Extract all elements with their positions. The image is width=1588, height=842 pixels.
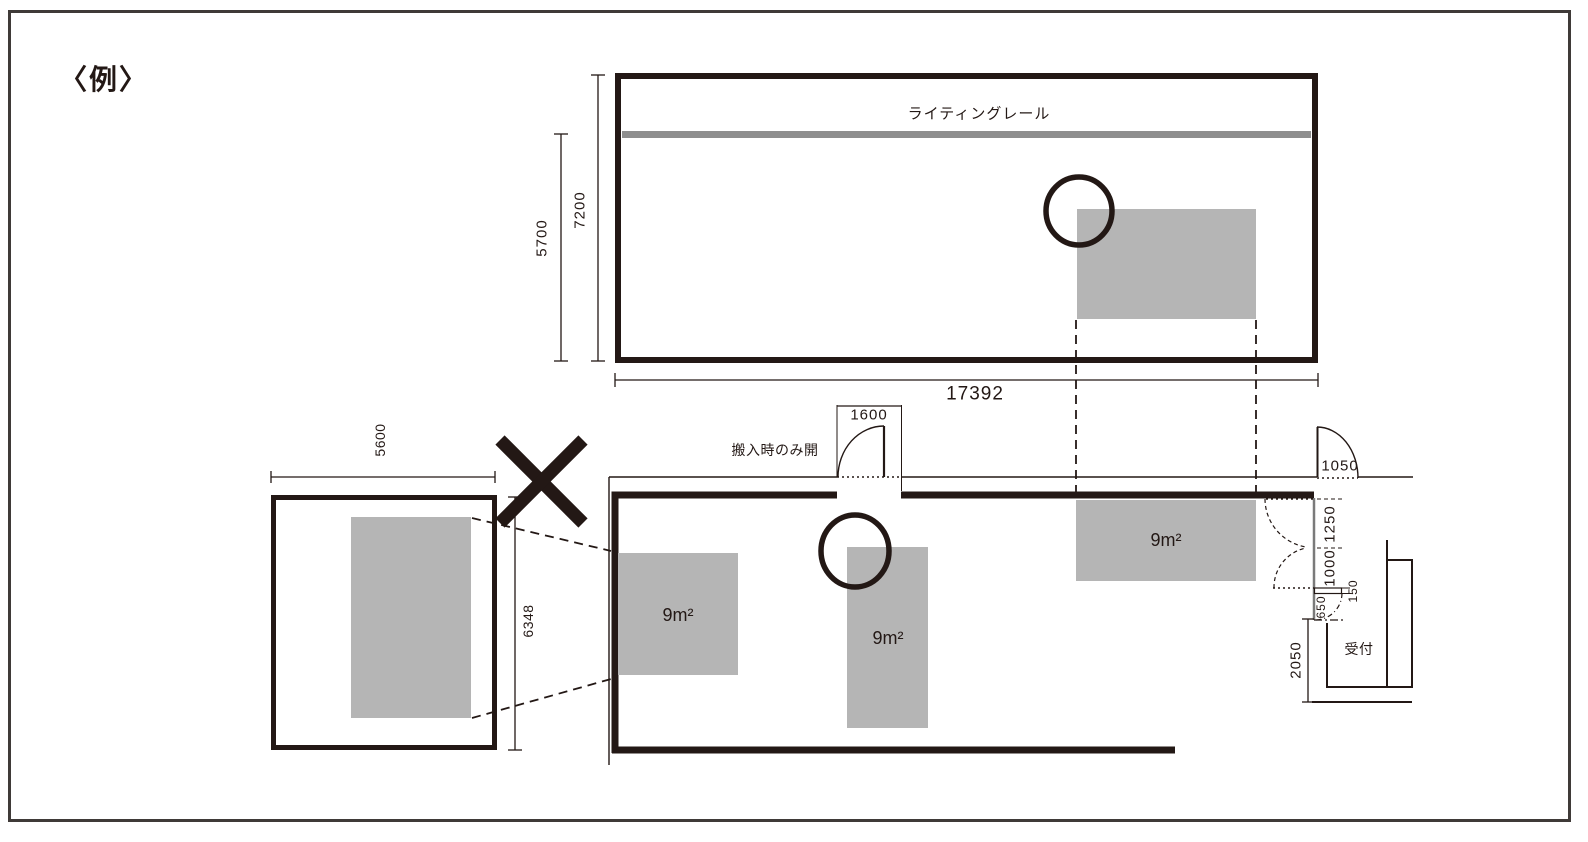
dim-label-6348: 6348: [521, 604, 535, 637]
dim-label-1050: 1050: [1321, 459, 1358, 474]
dim-label-5700: 5700: [535, 219, 550, 256]
dim-label-150: 150: [1347, 579, 1359, 602]
dim-label-1250: 1250: [1323, 505, 1338, 542]
lighting-rail-bar: [622, 131, 1311, 138]
floor-plan-drawing: [0, 0, 1588, 842]
dim-label-1600: 1600: [850, 408, 887, 423]
dim-label-650: 650: [1315, 595, 1327, 618]
wall-stub-rect: [1315, 588, 1342, 594]
dim-label-2050: 2050: [1289, 641, 1304, 678]
dim-label-5600: 5600: [373, 423, 387, 456]
floor-plan-page: 〈例〉 ライティングレール 7200 5700 17392 1600 搬入時のみ…: [0, 0, 1588, 842]
side-room-booth-rect: [351, 517, 471, 718]
dim-line-7200: [591, 75, 605, 361]
dim-label-7200: 7200: [573, 191, 588, 228]
reception-label: 受付: [1345, 642, 1374, 656]
dim-label-1000: 1000: [1323, 549, 1338, 586]
dim-label-17392: 17392: [946, 385, 1004, 404]
booth-area-label: 9m²: [873, 629, 904, 647]
delivery-door-note: 搬入時のみ開: [732, 443, 819, 457]
dim-line-5700: [554, 134, 568, 361]
lighting-rail-label: ライティングレール: [908, 107, 1051, 122]
booth-area-label: 9m²: [663, 606, 694, 624]
example-title: 〈例〉: [59, 66, 149, 94]
ng-cross-mark: [500, 440, 583, 523]
upper-booth-rect: [1077, 209, 1256, 319]
booth-area-label: 9m²: [1151, 531, 1182, 549]
dim-line-5600: [271, 471, 495, 483]
